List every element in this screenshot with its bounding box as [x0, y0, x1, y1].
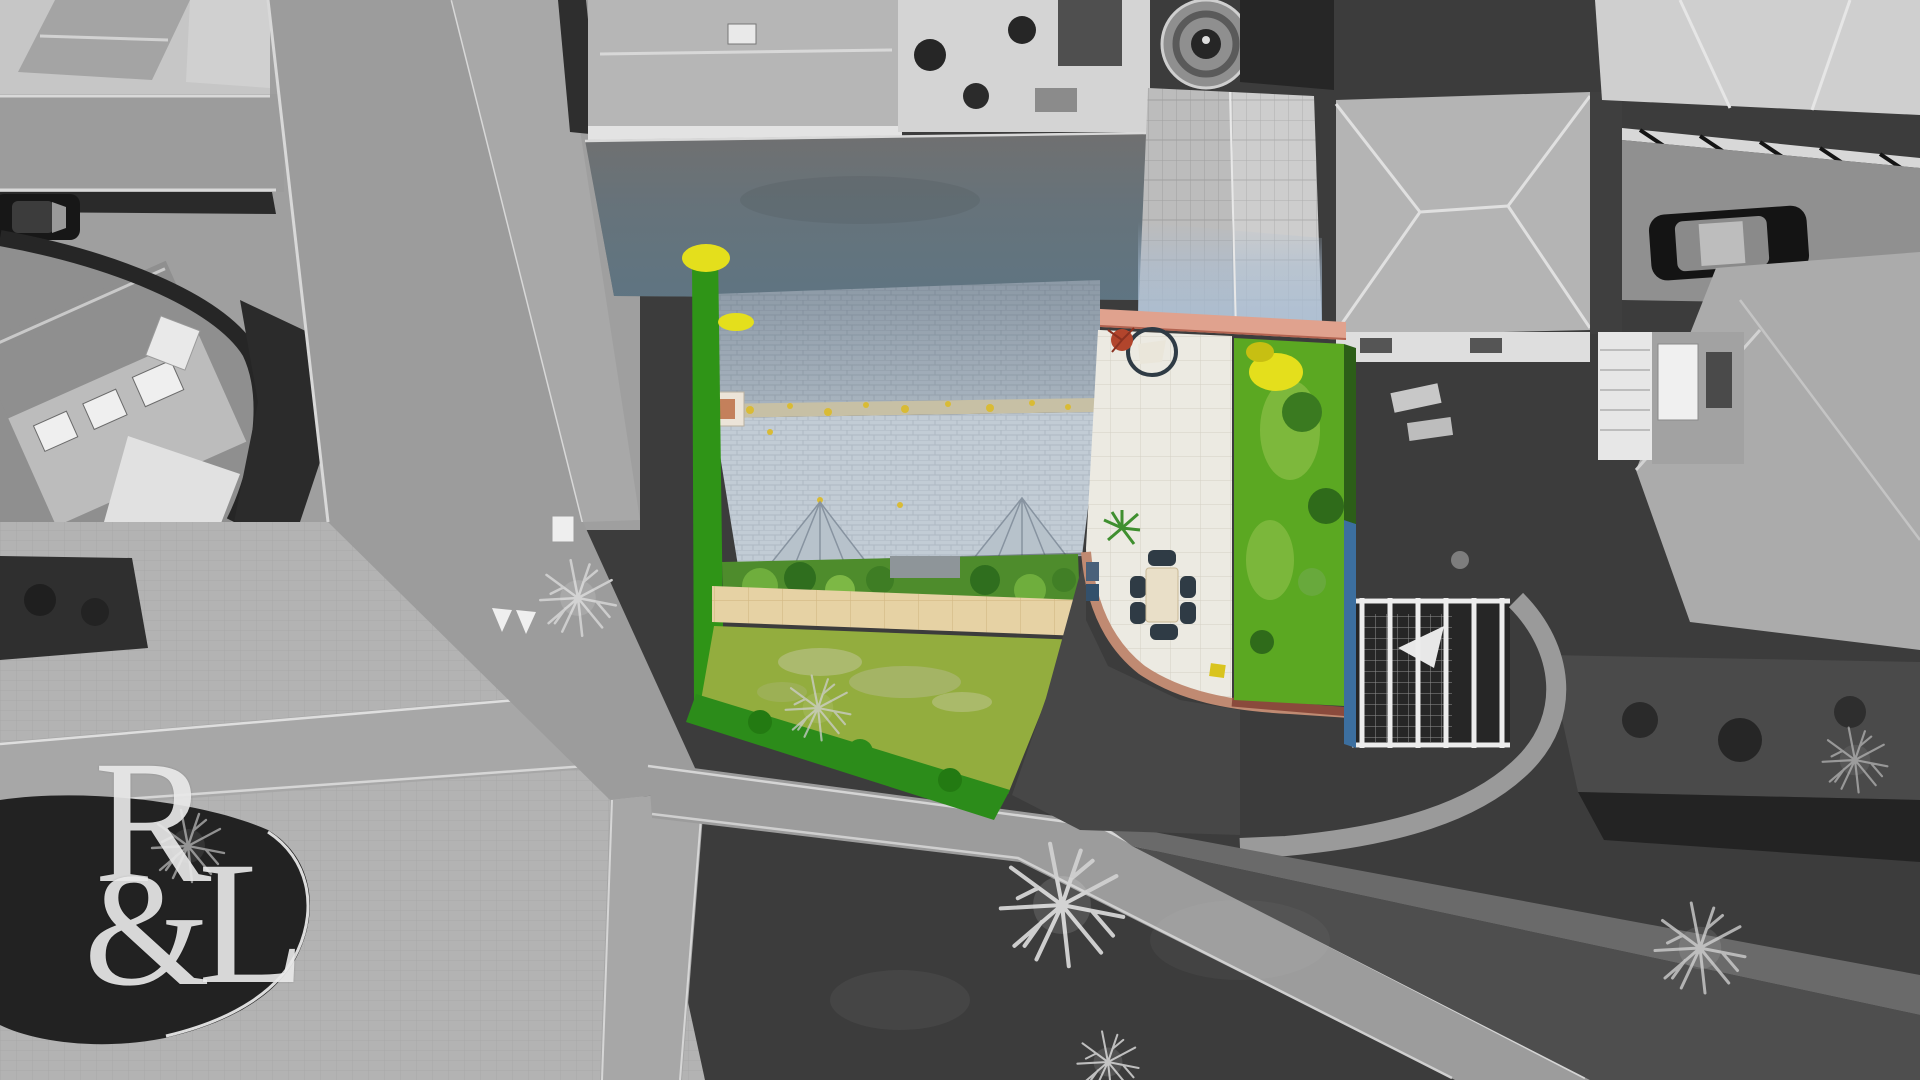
aerial-drone-photo: R & L — [0, 0, 1920, 1080]
window — [1470, 338, 1502, 353]
potted-plant — [914, 39, 946, 71]
chair — [1180, 576, 1196, 598]
bush — [1308, 488, 1344, 524]
hip-roof-neighbour — [1336, 92, 1590, 336]
window — [1706, 352, 1732, 408]
chair — [1180, 602, 1196, 624]
chair — [1130, 576, 1146, 598]
tarmac-stain — [740, 176, 980, 224]
house-roof-top-centre — [588, 0, 898, 128]
featured-house-roof — [702, 280, 1100, 566]
yellow-flower-bush — [1246, 342, 1274, 362]
bush — [748, 710, 772, 734]
yellow-drain-cover — [1209, 663, 1226, 678]
bush — [1282, 392, 1322, 432]
bush — [1250, 630, 1274, 654]
car-windshield — [52, 202, 66, 233]
skylight — [728, 24, 756, 44]
watermark-ampersand: & — [84, 850, 210, 1012]
bench-seat — [1138, 340, 1166, 364]
bush — [24, 584, 56, 616]
watermark-letter-l: L — [198, 836, 306, 1012]
bush — [1052, 568, 1076, 592]
window — [1360, 338, 1392, 353]
bush — [847, 739, 873, 765]
potted-plant — [963, 83, 989, 109]
bush — [1718, 718, 1762, 762]
bush — [970, 565, 1000, 595]
garage-door-wall — [890, 556, 960, 578]
dining-table — [1146, 568, 1178, 622]
planter-box — [1035, 88, 1077, 112]
gate-post — [552, 516, 574, 542]
field-mottling — [830, 970, 970, 1030]
blue-fence — [1344, 520, 1356, 748]
recycling-bin — [1086, 584, 1099, 601]
potted-plant — [1008, 16, 1036, 44]
chair — [1150, 624, 1178, 640]
chair — [1130, 602, 1146, 624]
car-roof — [12, 201, 54, 233]
field-mottling — [1150, 900, 1330, 980]
fountain-top — [1202, 36, 1210, 44]
white-garage — [1598, 332, 1652, 460]
side-road — [0, 94, 284, 192]
car-sunroof — [1699, 221, 1746, 266]
side-passage — [1590, 92, 1622, 334]
chair — [1148, 550, 1176, 566]
bush — [1834, 696, 1866, 728]
roof-top-right — [1595, 0, 1920, 115]
white-door — [1658, 344, 1698, 420]
yellow-flower-bush — [682, 244, 730, 272]
garden-ornament — [1451, 551, 1469, 569]
fountain-circle — [1162, 0, 1250, 88]
bush — [81, 598, 109, 626]
driveway-top-left — [186, 0, 270, 88]
left-edge-garden — [0, 556, 148, 660]
roof-upper-texture — [714, 280, 1100, 410]
doorway-recess — [1058, 0, 1122, 66]
recycling-bin — [1086, 562, 1099, 581]
bush — [938, 768, 962, 792]
dark-planting — [1240, 0, 1334, 90]
yellow-flower-bush — [718, 313, 754, 331]
bush — [1622, 702, 1658, 738]
east-hedge-strip — [1344, 344, 1356, 524]
bush — [866, 566, 894, 594]
bush — [1298, 568, 1326, 596]
